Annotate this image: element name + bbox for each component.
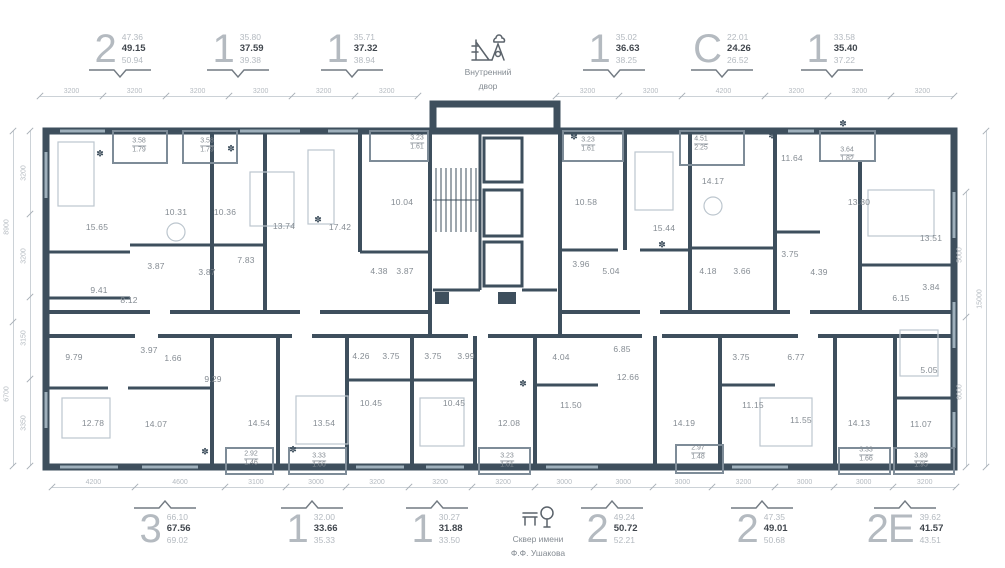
vent-shafts [435,292,516,304]
room-partitions [46,131,954,398]
elevator-shafts [484,138,522,286]
staircase [433,168,480,232]
park-label-line2: Ф.Ф. Ушакова [511,548,565,559]
park-landmark: Сквер имени Ф.Ф. Ушакова [502,503,574,558]
park-label-line1: Сквер имени [513,534,564,545]
playground-icon [466,32,510,64]
courtyard-label-line1: Внутренний [465,67,512,78]
courtyard-landmark: Внутренний двор [455,32,521,91]
courtyard-label-line2: двор [479,81,498,92]
park-bench-icon [518,503,558,531]
floor-plan-page: 3200320032003200320032003200320042003200… [0,0,1005,568]
